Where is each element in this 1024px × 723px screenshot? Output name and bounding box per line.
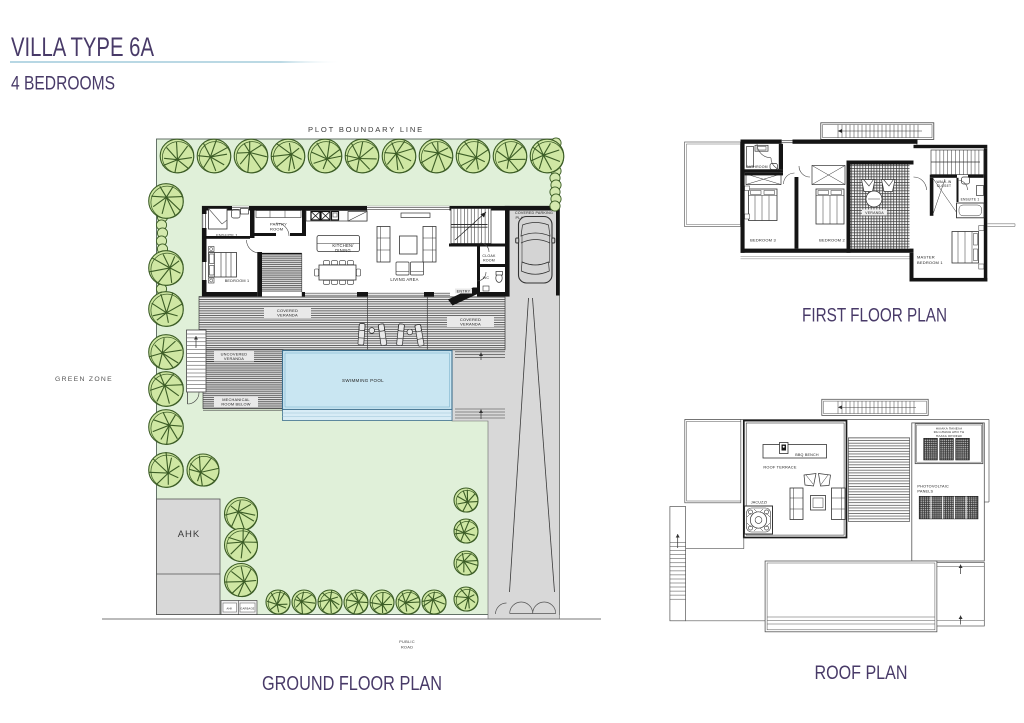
svg-text:WC: WC [483, 276, 490, 280]
svg-text:BEDROOM 1: BEDROOM 1 [917, 260, 943, 265]
svg-text:ENSUITE 1: ENSUITE 1 [961, 198, 980, 202]
svg-text:ROOF PLAN: ROOF PLAN [815, 663, 908, 684]
svg-text:GARBAGE: GARBAGE [240, 607, 254, 611]
svg-text:4 BEDROOMS: 4 BEDROOMS [11, 73, 115, 95]
svg-text:JACUZZI: JACUZZI [751, 501, 768, 505]
svg-text:BBQ BENCH: BBQ BENCH [795, 453, 819, 457]
svg-text:ENSUITE 1: ENSUITE 1 [216, 233, 237, 237]
svg-text:ΠΛΑΚΑ ΟΡΟΦΗΣ: ΠΛΑΚΑ ΟΡΟΦΗΣ [936, 434, 962, 438]
svg-text:DINING: DINING [335, 248, 351, 253]
svg-text:BEDROOM 2: BEDROOM 2 [819, 238, 845, 243]
svg-text:PANELS: PANELS [917, 489, 933, 493]
svg-text:LIVING AREA: LIVING AREA [390, 277, 418, 282]
svg-text:ROOF TERRACE: ROOF TERRACE [763, 465, 796, 470]
svg-text:ROOM: ROOM [483, 258, 495, 262]
svg-text:VILLA TYPE 6A: VILLA TYPE 6A [11, 32, 154, 62]
svg-text:BEDROOM 1: BEDROOM 1 [225, 279, 250, 283]
svg-text:VERANDA: VERANDA [460, 322, 481, 327]
svg-text:AHK: AHK [178, 529, 201, 540]
svg-text:MASTER: MASTER [917, 255, 935, 260]
svg-text:PHOTOVOLTAIC: PHOTOVOLTAIC [917, 485, 949, 489]
svg-text:PUBLIC: PUBLIC [399, 639, 415, 644]
svg-text:ROAD: ROAD [401, 645, 413, 650]
svg-text:ROOM: ROOM [270, 226, 283, 231]
svg-text:FIRST FLOOR PLAN: FIRST FLOOR PLAN [802, 306, 947, 327]
svg-text:BATHROOM: BATHROOM [746, 165, 768, 169]
svg-text:SWIMMING POOL: SWIMMING POOL [342, 378, 384, 383]
svg-text:VERANDA: VERANDA [224, 356, 244, 361]
svg-text:AHK: AHK [227, 607, 233, 611]
svg-text:BEDROOM 3: BEDROOM 3 [750, 238, 776, 243]
svg-text:VERANDA: VERANDA [277, 313, 298, 318]
svg-text:ROOM BELOW: ROOM BELOW [221, 401, 250, 406]
svg-text:CLOSET: CLOSET [937, 184, 951, 188]
svg-text:VERANDA: VERANDA [865, 211, 884, 215]
svg-text:GREEN ZONE: GREEN ZONE [55, 376, 113, 383]
svg-text:PLOT BOUNDARY LINE: PLOT BOUNDARY LINE [308, 125, 424, 134]
svg-text:ENTRY: ENTRY [457, 290, 471, 294]
svg-text:GROUND FLOOR PLAN: GROUND FLOOR PLAN [262, 673, 442, 695]
